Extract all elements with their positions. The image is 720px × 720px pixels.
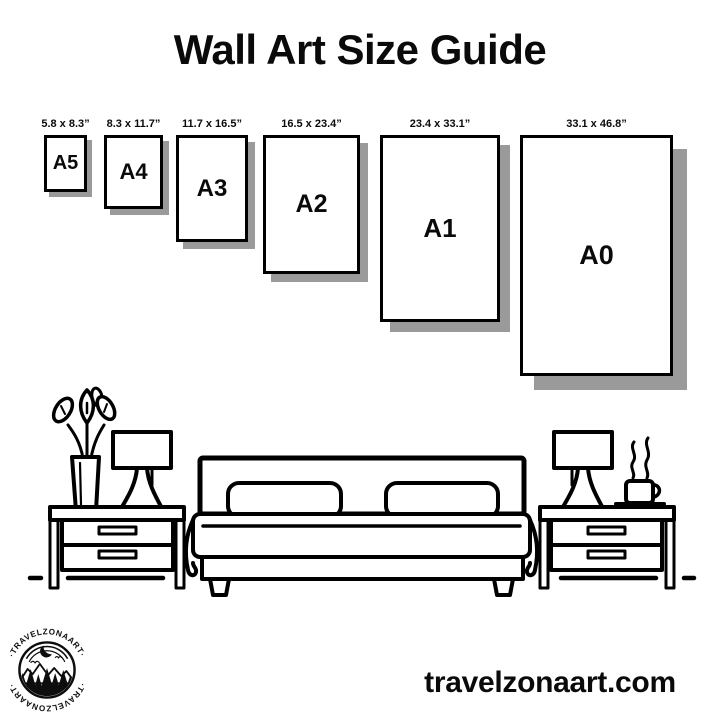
- pillow-icon: [228, 483, 341, 517]
- pillow-icon: [386, 483, 498, 517]
- size-box-a5: 5.8 x 8.3” A5: [44, 135, 87, 192]
- table-lamp-right-icon: [554, 432, 612, 510]
- paper-sheet-a5: A5: [44, 135, 87, 192]
- paper-letter-a1: A1: [423, 213, 456, 244]
- paper-sheet-a2: A2: [263, 135, 360, 274]
- brand-logo: ·TRAVELZONAART· ·TRAVELZONAART·: [4, 620, 90, 718]
- bedroom-illustration: [0, 380, 720, 605]
- paper-sheet-a0: A0: [520, 135, 673, 376]
- coffee-cup-icon: [616, 438, 664, 504]
- size-box-a4: 8.3 x 11.7” A4: [104, 135, 163, 209]
- dimension-label-a1: 23.4 x 33.1”: [410, 118, 471, 130]
- dimension-label-a5: 5.8 x 8.3”: [41, 118, 89, 130]
- paper-letter-a0: A0: [579, 240, 614, 271]
- mattress: [193, 514, 530, 557]
- size-box-a1: 23.4 x 33.1” A1: [380, 135, 500, 322]
- paper-sheet-a4: A4: [104, 135, 163, 209]
- dimension-label-a2: 16.5 x 23.4”: [281, 118, 342, 130]
- dimension-label-a3: 11.7 x 16.5”: [182, 118, 242, 130]
- size-box-a2: 16.5 x 23.4” A2: [263, 135, 360, 274]
- paper-letter-a5: A5: [53, 152, 79, 175]
- plant-vase-icon: [50, 387, 119, 511]
- paper-sheet-a1: A1: [380, 135, 500, 322]
- table-lamp-left-icon: [113, 432, 171, 510]
- page-title: Wall Art Size Guide: [0, 26, 720, 74]
- dimension-label-a0: 33.1 x 46.8”: [566, 118, 627, 130]
- bed-base: [202, 557, 523, 579]
- paper-letter-a2: A2: [296, 190, 328, 219]
- dimension-label-a4: 8.3 x 11.7”: [107, 118, 161, 130]
- size-box-a3: 11.7 x 16.5” A3: [176, 135, 248, 242]
- paper-sheet-a3: A3: [176, 135, 248, 242]
- paper-letter-a3: A3: [197, 175, 228, 203]
- paper-letter-a4: A4: [119, 159, 147, 185]
- double-bed-icon: [186, 458, 537, 595]
- website-text: travelzonaart.com: [390, 666, 710, 700]
- size-box-a0: 33.1 x 46.8” A0: [520, 135, 673, 376]
